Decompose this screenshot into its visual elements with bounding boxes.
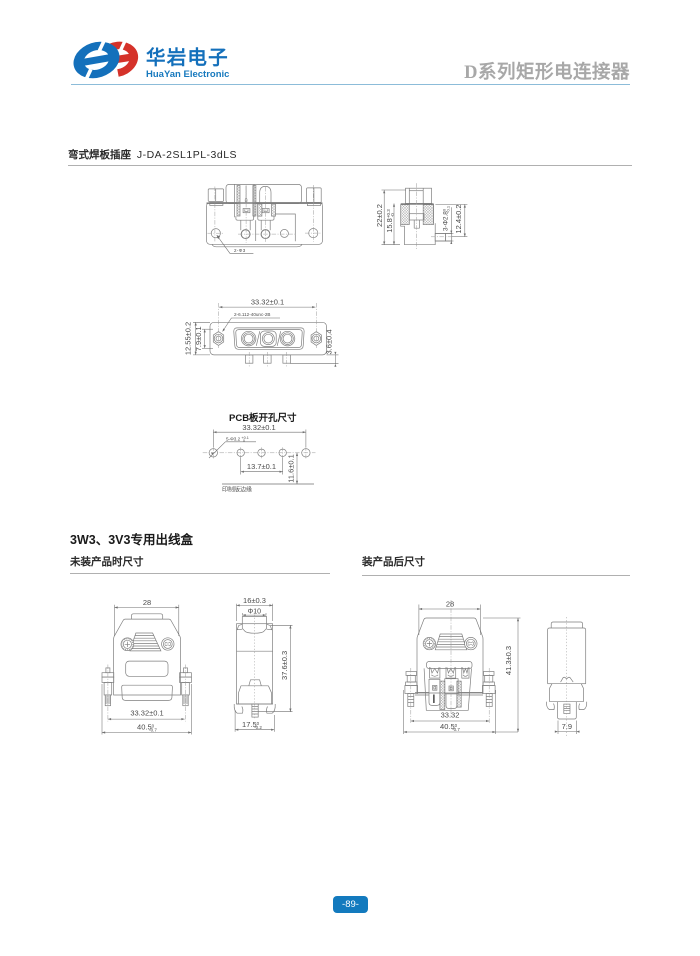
svg-text:3.6±0.4: 3.6±0.4 <box>325 330 334 355</box>
svg-text:33.32±0.1: 33.32±0.1 <box>130 709 163 718</box>
svg-text:28: 28 <box>143 598 151 607</box>
svg-text:40.50-0.7: 40.50-0.7 <box>137 722 157 732</box>
svg-text:40.50-0.7: 40.50-0.7 <box>440 722 460 732</box>
svg-text:Φ10: Φ10 <box>248 609 261 616</box>
svg-text:33.32±0.1: 33.32±0.1 <box>242 423 275 432</box>
svg-text:28: 28 <box>446 600 454 609</box>
svg-text:3-Φ2.80-0.1: 3-Φ2.80-0.1 <box>442 205 451 231</box>
svg-text:11.6±0.1: 11.6±0.1 <box>287 454 296 483</box>
svg-text:7.9: 7.9 <box>562 722 572 731</box>
svg-text:37.6±0.3: 37.6±0.3 <box>280 651 289 680</box>
svg-text:17.50-0.2: 17.50-0.2 <box>242 720 262 730</box>
svg-text:13.7±0.1: 13.7±0.1 <box>247 462 276 471</box>
svg-text:12.4±0.2: 12.4±0.2 <box>454 204 463 233</box>
svg-text:12.55±0.2: 12.55±0.2 <box>184 322 193 355</box>
svg-text:印制版边缘: 印制版边缘 <box>222 486 252 494</box>
svg-text:22±0.2: 22±0.2 <box>375 204 384 227</box>
svg-text:41.3±0.3: 41.3±0.3 <box>504 646 513 675</box>
svg-text:16±0.3: 16±0.3 <box>243 596 266 605</box>
svg-text:2-6.112-40unc-2B: 2-6.112-40unc-2B <box>234 312 270 317</box>
svg-text:33.32±0.1: 33.32±0.1 <box>251 298 284 307</box>
svg-text:2-Φ3: 2-Φ3 <box>234 248 246 253</box>
svg-text:7.9±0.1: 7.9±0.1 <box>194 326 203 351</box>
svg-text:15.8+0.3-0: 15.8+0.3-0 <box>385 209 395 233</box>
svg-text:33.32: 33.32 <box>441 711 460 720</box>
